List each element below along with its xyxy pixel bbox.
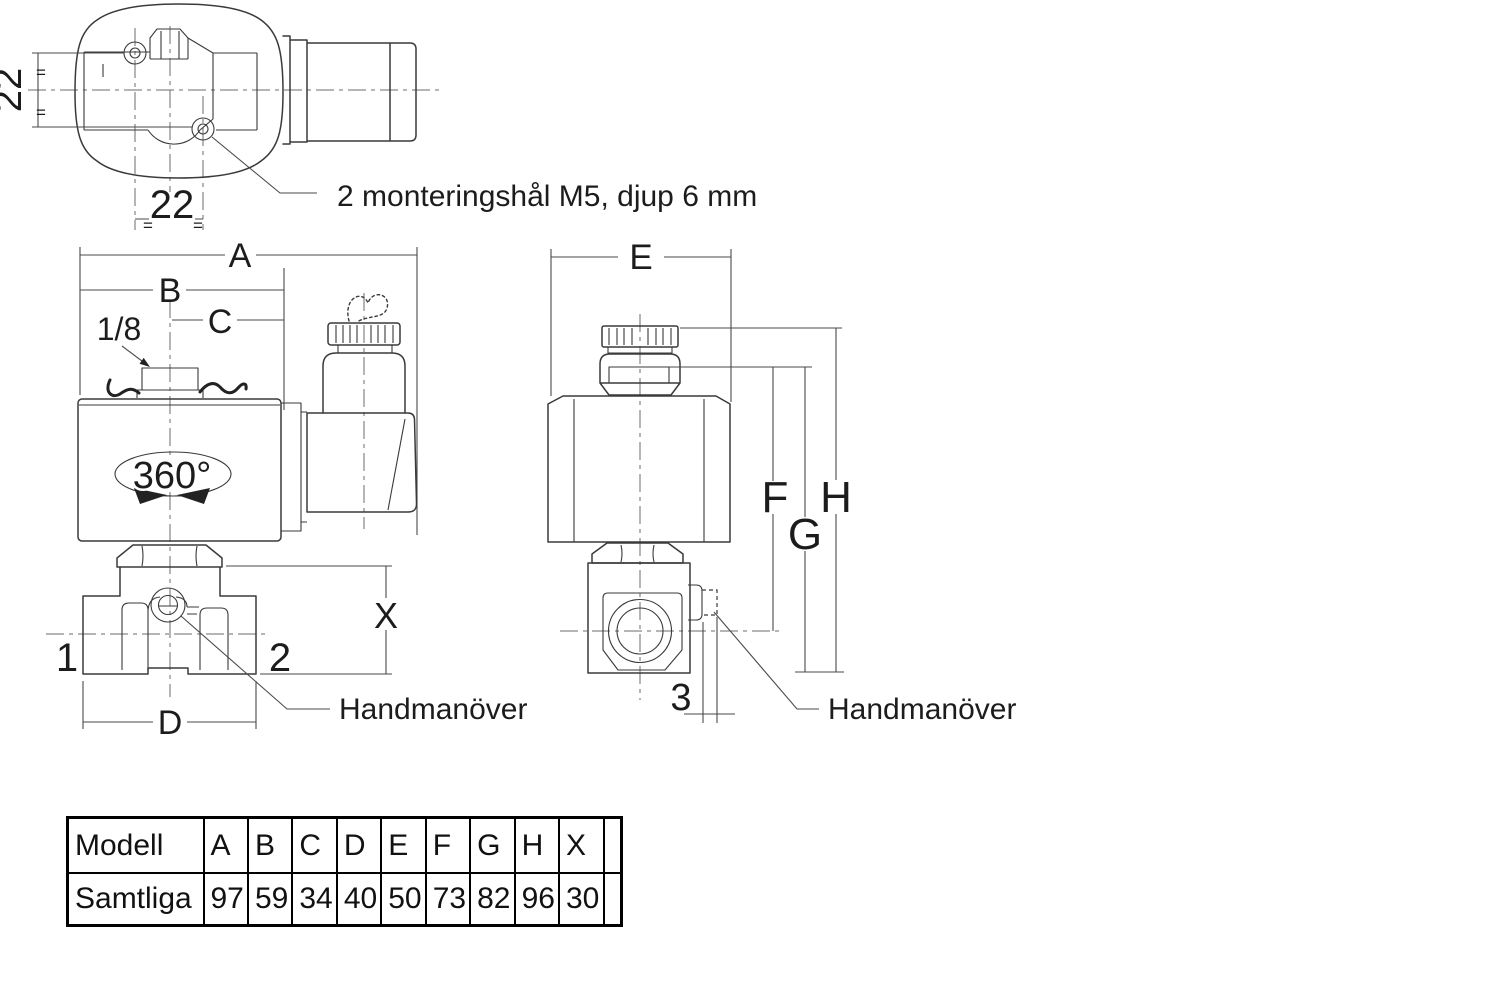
top-view-connector-block [150, 29, 188, 59]
connector-interface-strips [281, 403, 307, 531]
side-manual-override-hidden [702, 590, 717, 615]
table-header-e: E [381, 818, 425, 874]
table-header-modell: Modell [68, 818, 204, 874]
side-coil-inner-lines [574, 399, 704, 542]
side-view: E 3 F G H Handmanöver [548, 238, 1016, 726]
table-header-d: D [337, 818, 381, 874]
equals-mark-bottom: = [36, 103, 46, 122]
dim-x-line [226, 566, 392, 674]
table-header-c: C [292, 818, 336, 874]
dim-label-d: D [158, 704, 183, 742]
mounting-hole-leader [212, 137, 317, 193]
side-manual-override-leader [714, 612, 819, 709]
thread-leader-arrowhead [140, 358, 151, 367]
dim-label-e: E [629, 238, 652, 277]
retaining-clip-right [200, 384, 246, 393]
connector-housing-slant [388, 419, 405, 510]
equals-mark-top: = [36, 63, 46, 82]
top-view-body-outline [75, 4, 283, 178]
table-value-h: 96 [515, 873, 559, 926]
dimension-table: Modell A B C D E F G H X Samtliga 97 59 … [66, 816, 623, 927]
dim-label-f: F [762, 473, 789, 522]
side-terminal-block [609, 367, 669, 383]
side-coil-body [548, 396, 730, 542]
table-value-c: 34 [292, 873, 336, 926]
table-row-label: Samtliga [68, 873, 204, 926]
table-value-b: 59 [248, 873, 292, 926]
mounting-note: 2 monteringshål M5, djup 6 mm [337, 180, 757, 213]
table-header-h: H [515, 818, 559, 874]
dim-label-width-22: 22 [150, 183, 195, 227]
side-hex-nut [592, 543, 683, 563]
table-value-empty [604, 873, 622, 926]
thread-size-label: 1/8 [97, 311, 141, 347]
side-hex-nut-facets [621, 545, 654, 562]
equals-mark-left: = [143, 216, 153, 235]
dimension-table-value-row: Samtliga 97 59 34 40 50 73 82 96 30 [68, 873, 622, 926]
table-value-g: 82 [470, 873, 514, 926]
table-header-x: X [559, 818, 604, 874]
equals-mark-right: = [193, 216, 203, 235]
table-header-f: F [426, 818, 470, 874]
port-label-2: 2 [269, 636, 291, 680]
rotation-label: 360° [133, 455, 212, 497]
table-value-f: 73 [426, 873, 470, 926]
dim-label-g: G [788, 510, 822, 559]
cable-loop-dotted [348, 295, 388, 322]
dim-label-height-22: 22 [0, 68, 30, 113]
table-header-b: B [248, 818, 292, 874]
manual-override-knob-outer [151, 588, 185, 622]
table-header-g: G [470, 818, 514, 874]
dim-label-h: H [820, 473, 852, 522]
table-value-x: 30 [559, 873, 604, 926]
retaining-clip-left [108, 380, 139, 396]
front-manual-override-label: Handmanöver [339, 693, 527, 726]
technical-drawing-page: 22 = = 22 = = 2 monteringshål M5, djup 6… [0, 0, 1500, 999]
table-value-e: 50 [381, 873, 425, 926]
dimension-table-header-row: Modell A B C D E F G H X [68, 818, 622, 874]
dim-3-line [684, 617, 735, 723]
port-label-1: 1 [56, 636, 78, 680]
table-header-a: A [204, 818, 248, 874]
connector-collar [338, 345, 392, 353]
front-view: A B C 1/8 360° [46, 237, 527, 742]
table-header-empty [604, 818, 622, 874]
manual-override-knob-inner [159, 596, 178, 615]
top-view: 22 = = 22 = = 2 monteringshål M5, djup 6… [0, 4, 757, 235]
table-value-d: 40 [337, 873, 381, 926]
table-value-a: 97 [204, 873, 248, 926]
dim-label-b: B [159, 272, 182, 310]
dim-label-a: A [229, 237, 252, 275]
dim-label-3: 3 [670, 677, 691, 719]
side-manual-override-label: Handmanöver [828, 693, 1016, 726]
connector-housing [307, 413, 417, 512]
dim-label-x: X [374, 595, 398, 636]
dim-label-c: C [208, 303, 233, 341]
